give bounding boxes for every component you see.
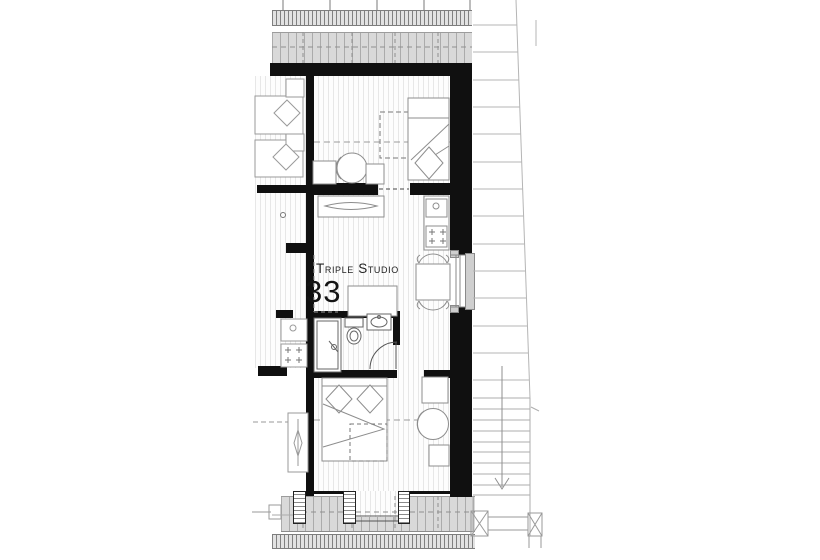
armchair bbox=[418, 409, 449, 440]
kitchen-sink bbox=[281, 319, 307, 341]
south-window-jamb-2 bbox=[343, 491, 356, 524]
floor-plan: Triple Studio 33 bbox=[0, 0, 820, 560]
side-table bbox=[366, 164, 384, 184]
kitchen-stove bbox=[426, 226, 447, 247]
south-window-jamb-3 bbox=[398, 491, 410, 524]
plan-linework bbox=[0, 0, 820, 560]
bedroom-south-furniture bbox=[322, 377, 449, 466]
shower bbox=[314, 318, 341, 372]
side-table bbox=[313, 161, 336, 184]
toilet-tank bbox=[345, 318, 363, 327]
toilet bbox=[347, 328, 361, 344]
bed-double bbox=[322, 378, 387, 461]
adjacent-unit-furniture bbox=[255, 79, 308, 472]
side-table bbox=[429, 445, 449, 466]
dining-table bbox=[416, 264, 450, 300]
bedroom-north-furniture bbox=[313, 98, 449, 184]
dining-chair bbox=[419, 301, 447, 310]
bathroom-fixtures bbox=[314, 314, 397, 372]
kitchen-stove bbox=[281, 344, 307, 367]
side-table bbox=[286, 79, 304, 97]
desk bbox=[348, 286, 397, 316]
unit-number-label: 33 bbox=[305, 276, 341, 307]
side-table bbox=[422, 377, 448, 403]
armchair bbox=[337, 153, 367, 183]
roof-tick-marks bbox=[283, 0, 470, 11]
east-window-glazing bbox=[450, 255, 465, 307]
stair-direction-arrow bbox=[495, 366, 509, 489]
south-window-jamb-1 bbox=[293, 491, 306, 524]
adjacent-roof-lines bbox=[473, 0, 536, 398]
dining-chair bbox=[419, 254, 447, 263]
skylight-outline bbox=[380, 112, 410, 158]
balcony-door-sill bbox=[272, 515, 398, 521]
fixture-mark bbox=[281, 213, 286, 218]
kitchen-sink bbox=[426, 199, 447, 217]
bathroom-door-arc bbox=[370, 342, 397, 369]
